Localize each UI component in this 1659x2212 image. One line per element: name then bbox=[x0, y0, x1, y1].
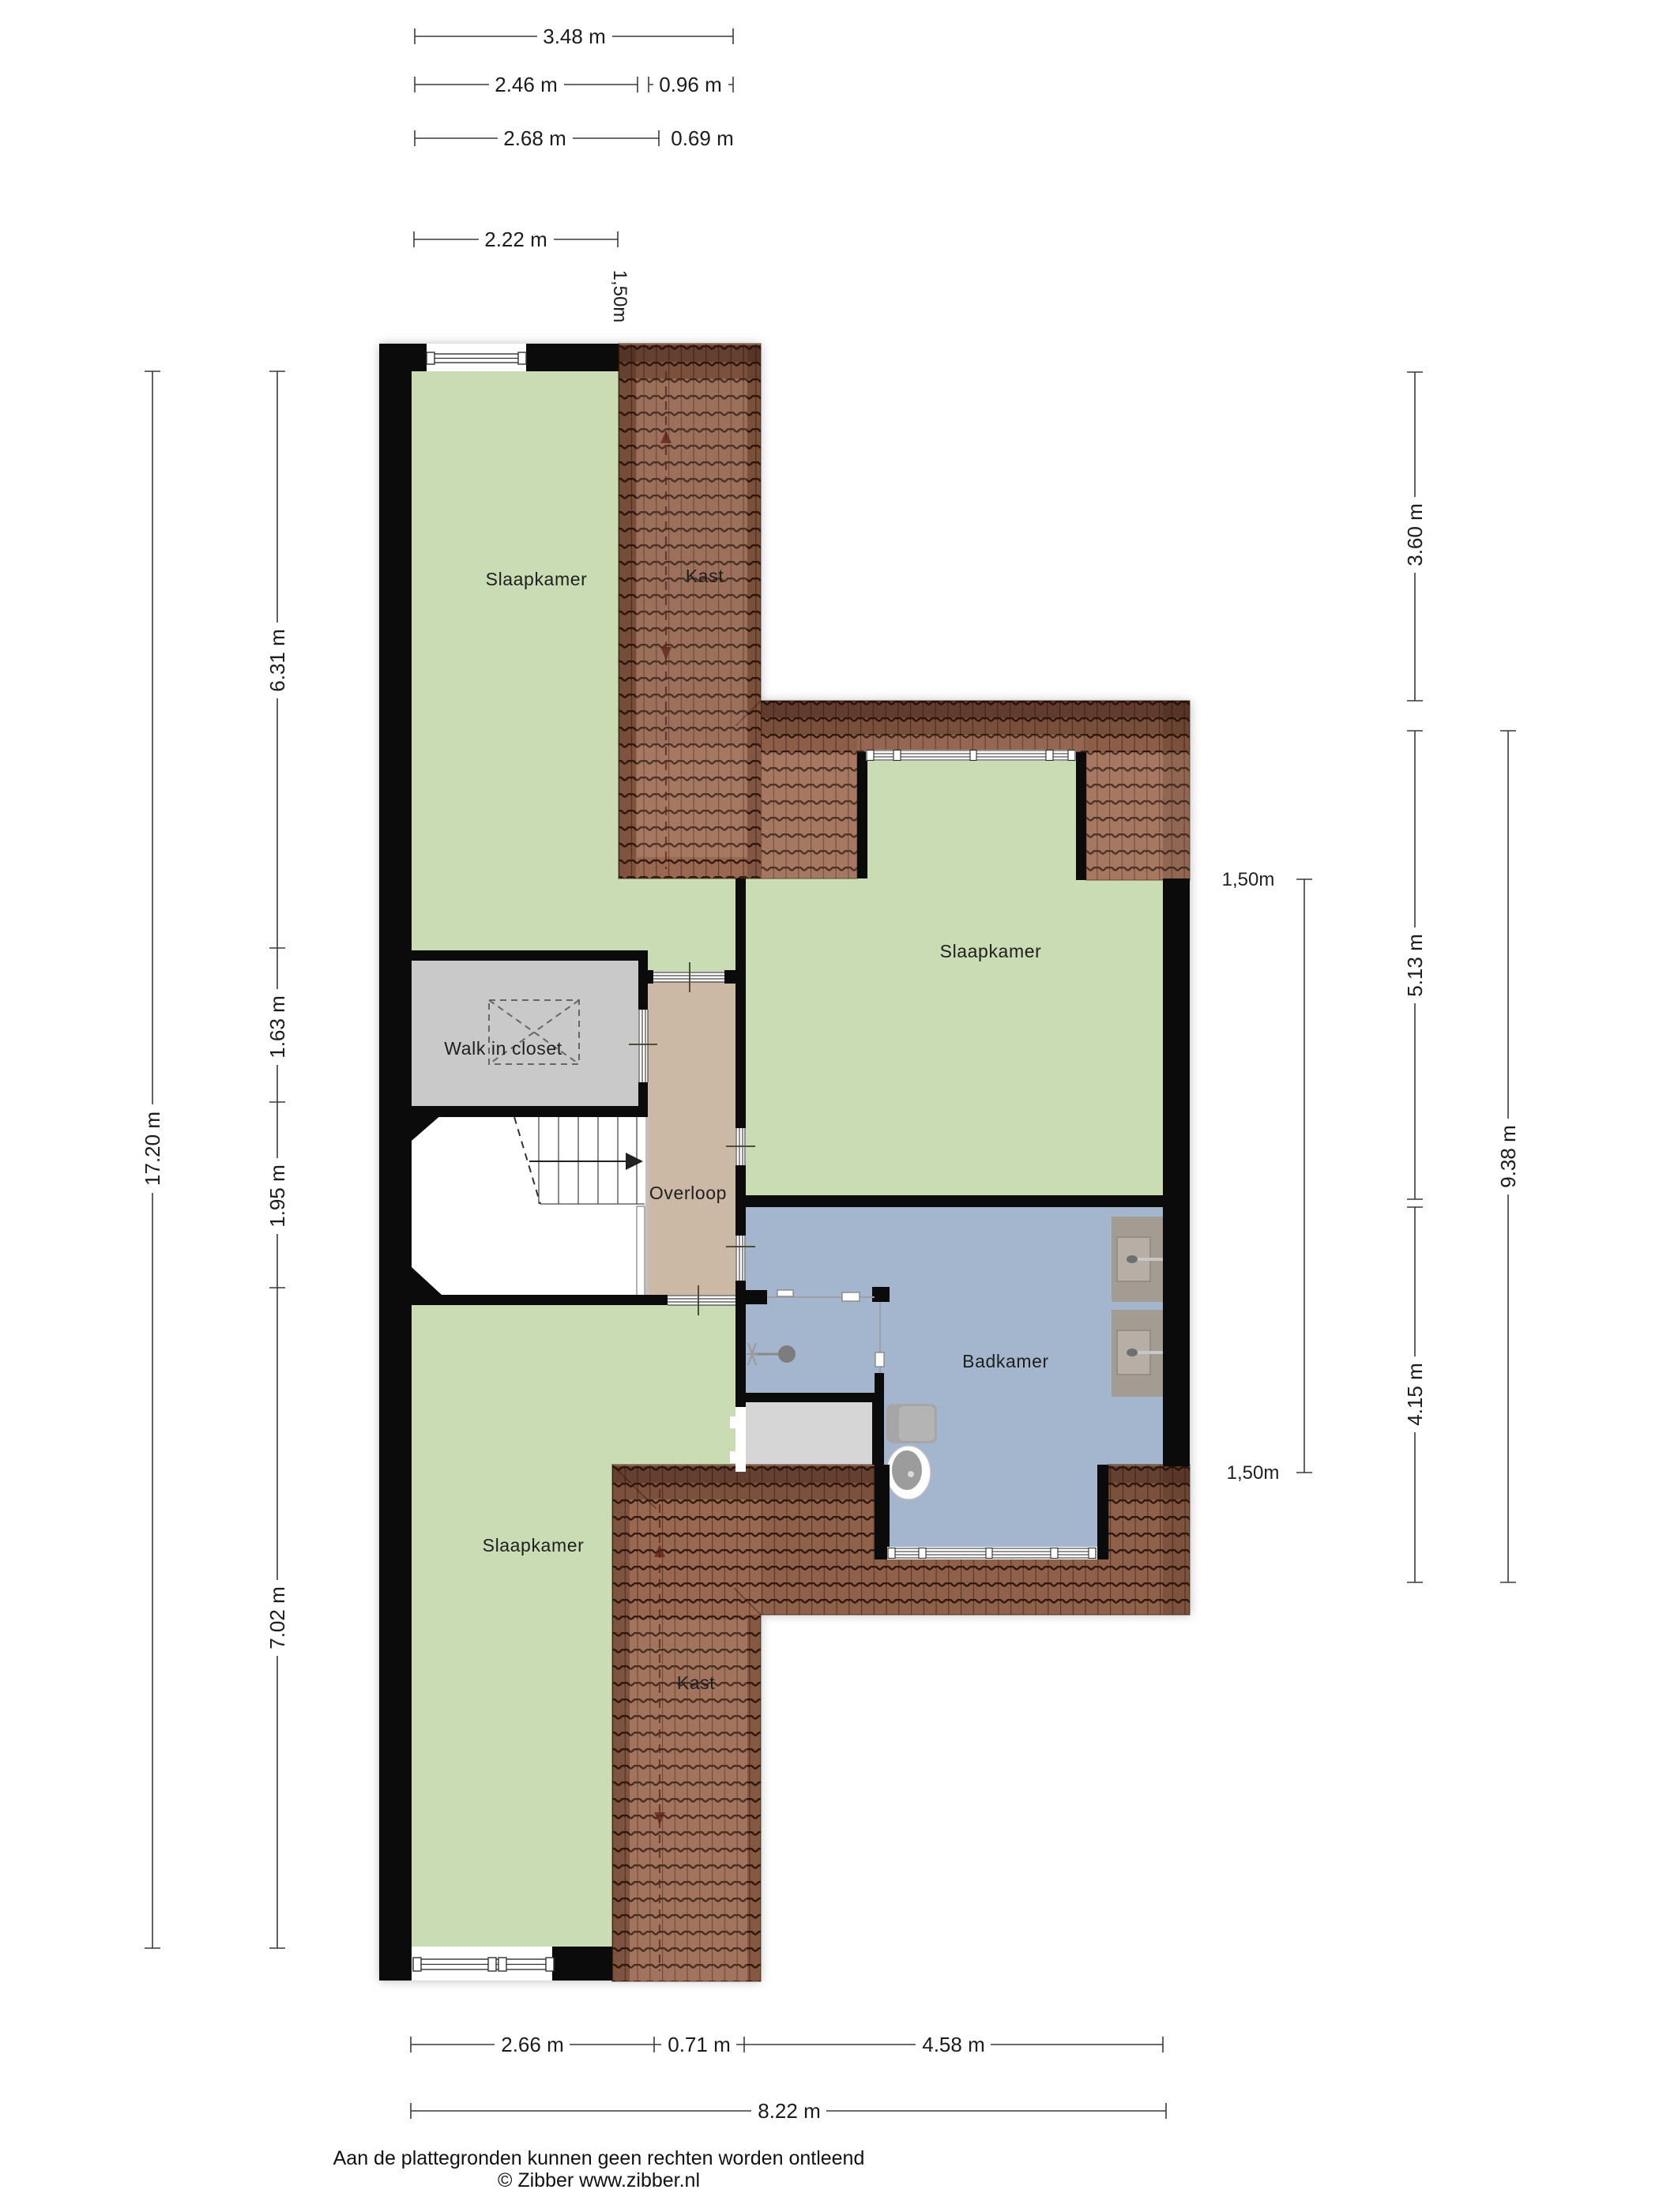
svg-text:17.20 m: 17.20 m bbox=[141, 1112, 164, 1186]
svg-text:0.71 m: 0.71 m bbox=[668, 2033, 731, 2056]
svg-text:1,50m: 1,50m bbox=[609, 270, 630, 323]
svg-text:7.02 m: 7.02 m bbox=[265, 1586, 289, 1650]
svg-text:Slaapkamer: Slaapkamer bbox=[486, 569, 588, 589]
svg-text:6.31 m: 6.31 m bbox=[265, 629, 289, 692]
svg-text:4.58 m: 4.58 m bbox=[922, 2033, 985, 2056]
svg-text:3.48 m: 3.48 m bbox=[543, 24, 606, 48]
svg-text:Kast: Kast bbox=[686, 566, 724, 586]
svg-text:4.15 m: 4.15 m bbox=[1403, 1363, 1427, 1426]
svg-text:1,50m: 1,50m bbox=[1227, 1462, 1280, 1484]
svg-text:Kast: Kast bbox=[677, 1672, 715, 1693]
svg-text:Slaapkamer: Slaapkamer bbox=[483, 1535, 585, 1556]
svg-text:8.22 m: 8.22 m bbox=[758, 2099, 821, 2123]
svg-text:1.95 m: 1.95 m bbox=[265, 1164, 289, 1228]
svg-text:9.38 m: 9.38 m bbox=[1496, 1125, 1520, 1188]
svg-text:Walk in closet: Walk in closet bbox=[444, 1038, 562, 1059]
svg-text:2.66 m: 2.66 m bbox=[501, 2033, 564, 2056]
svg-text:Overloop: Overloop bbox=[649, 1183, 727, 1203]
svg-text:5.13 m: 5.13 m bbox=[1403, 934, 1427, 997]
svg-text:2.46 m: 2.46 m bbox=[495, 73, 558, 96]
svg-text:0.69 m: 0.69 m bbox=[671, 126, 734, 150]
svg-text:Slaapkamer: Slaapkamer bbox=[940, 941, 1042, 961]
svg-text:2.22 m: 2.22 m bbox=[484, 228, 547, 251]
svg-text:2.68 m: 2.68 m bbox=[503, 126, 566, 150]
svg-text:1.63 m: 1.63 m bbox=[265, 995, 289, 1059]
svg-text:Badkamer: Badkamer bbox=[962, 1351, 1049, 1371]
svg-text:© Zibber www.zibber.nl: © Zibber www.zibber.nl bbox=[498, 2169, 700, 2191]
svg-text:3.60 m: 3.60 m bbox=[1403, 503, 1427, 566]
svg-text:0.96 m: 0.96 m bbox=[659, 73, 722, 96]
svg-text:1,50m: 1,50m bbox=[1222, 869, 1275, 890]
svg-text:Aan de plattegronden kunnen ge: Aan de plattegronden kunnen geen rechten… bbox=[333, 2147, 865, 2169]
